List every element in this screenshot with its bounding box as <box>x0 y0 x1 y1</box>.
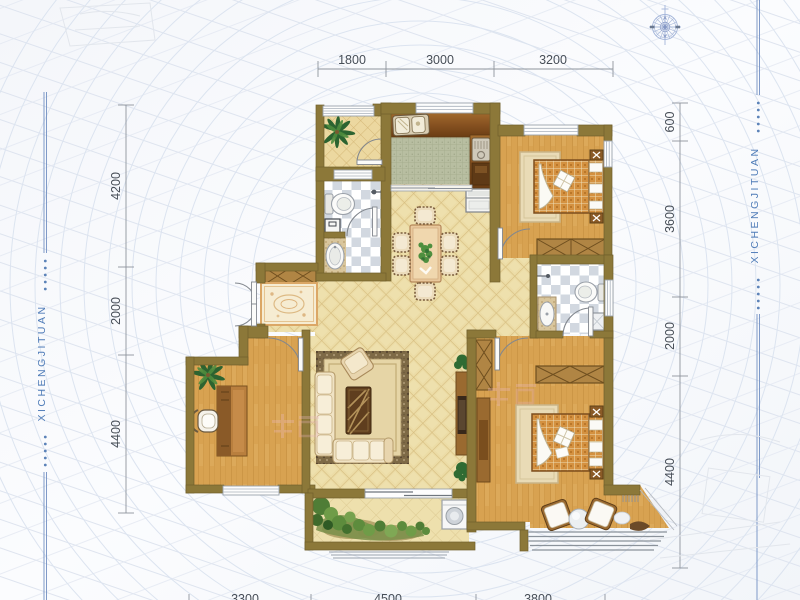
svg-text:4400: 4400 <box>663 458 677 486</box>
svg-text:3000: 3000 <box>426 53 454 67</box>
svg-text:600: 600 <box>663 112 677 133</box>
svg-text:3800: 3800 <box>524 592 552 600</box>
svg-text:4200: 4200 <box>109 172 123 200</box>
svg-text:3200: 3200 <box>539 53 567 67</box>
svg-text:2000: 2000 <box>663 322 677 350</box>
svg-text:4500: 4500 <box>374 592 402 600</box>
svg-text:1800: 1800 <box>338 53 366 67</box>
svg-text:2000: 2000 <box>109 297 123 325</box>
svg-text:4400: 4400 <box>109 420 123 448</box>
svg-text:3300: 3300 <box>231 592 259 600</box>
svg-text:XICHENGJITUAN: XICHENGJITUAN <box>36 304 48 421</box>
svg-text:XICHENGJITUAN: XICHENGJITUAN <box>749 146 761 263</box>
svg-text:3600: 3600 <box>663 205 677 233</box>
